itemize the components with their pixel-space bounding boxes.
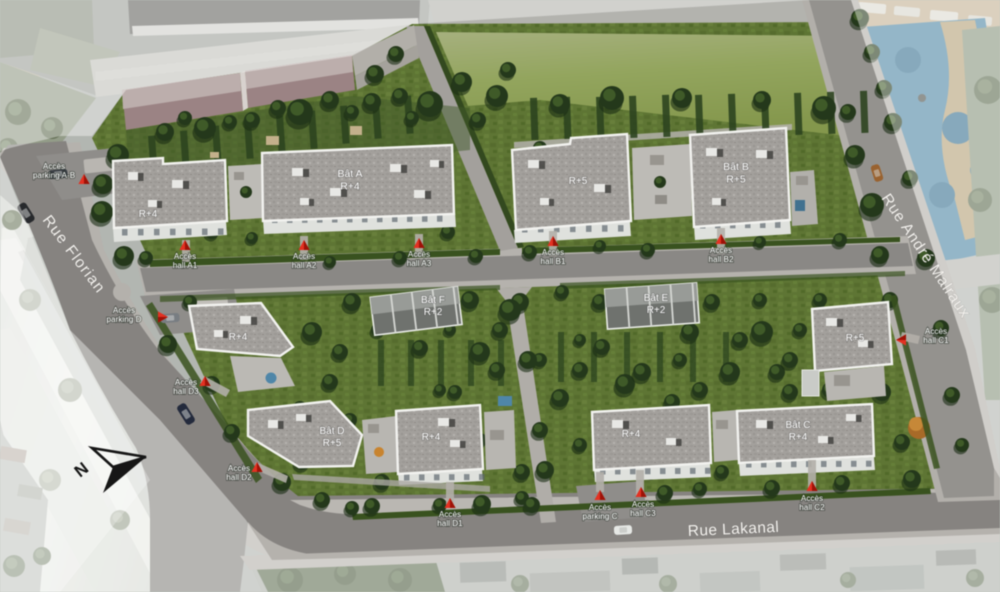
svg-text:Accès: Accès [228,464,250,473]
svg-text:hall B2: hall B2 [708,255,733,264]
svg-text:Accès: Accès [542,248,564,257]
svg-text:R+4: R+4 [422,432,441,443]
svg-text:hall D1: hall D1 [437,519,463,528]
svg-text:Accès: Accès [408,250,430,259]
svg-text:parking A-B: parking A-B [33,171,76,180]
svg-text:hall C1: hall C1 [923,336,949,345]
svg-text:hall C2: hall C2 [799,503,825,512]
svg-text:R+4: R+4 [622,429,641,440]
svg-text:Accès: Accès [43,162,65,171]
svg-text:Accès: Accès [113,306,135,315]
svg-text:R+5: R+5 [726,174,746,186]
svg-text:Bât D: Bât D [319,426,344,437]
svg-text:hall A2: hall A2 [292,261,317,270]
svg-text:R+5: R+5 [846,333,865,344]
svg-text:Bât F: Bât F [421,295,445,306]
svg-text:Accès: Accès [439,510,461,519]
svg-text:Accès: Accès [175,378,197,387]
svg-text:hall C3: hall C3 [630,509,656,518]
svg-text:hall D3: hall D3 [173,387,199,396]
svg-text:Accès: Accès [801,494,823,503]
svg-text:Bât E: Bât E [644,293,669,304]
svg-text:hall D2: hall D2 [226,473,252,482]
svg-text:hall A3: hall A3 [407,259,432,268]
svg-text:hall A1: hall A1 [173,261,198,270]
svg-text:hall B1: hall B1 [540,257,565,266]
svg-text:R+4: R+4 [789,432,808,443]
svg-text:Accès: Accès [589,503,611,512]
svg-text:R+4: R+4 [340,181,360,193]
svg-text:Bât C: Bât C [785,420,810,431]
svg-text:Bât A: Bât A [337,168,362,180]
svg-text:R+4: R+4 [229,332,248,343]
svg-text:parking C: parking C [582,512,617,521]
svg-text:parking D: parking D [106,315,141,324]
svg-text:Accès: Accès [710,246,732,255]
svg-text:R+4: R+4 [139,209,158,220]
svg-text:Accès: Accès [925,327,947,336]
svg-text:Bât B: Bât B [723,161,749,173]
svg-text:R+5: R+5 [323,438,342,449]
svg-text:Accès: Accès [293,252,315,261]
svg-text:Accès: Accès [174,252,196,261]
svg-text:R+2: R+2 [647,305,666,316]
svg-text:R+2: R+2 [424,307,443,318]
svg-text:Accès: Accès [632,500,654,509]
svg-text:R+5: R+5 [569,176,588,187]
